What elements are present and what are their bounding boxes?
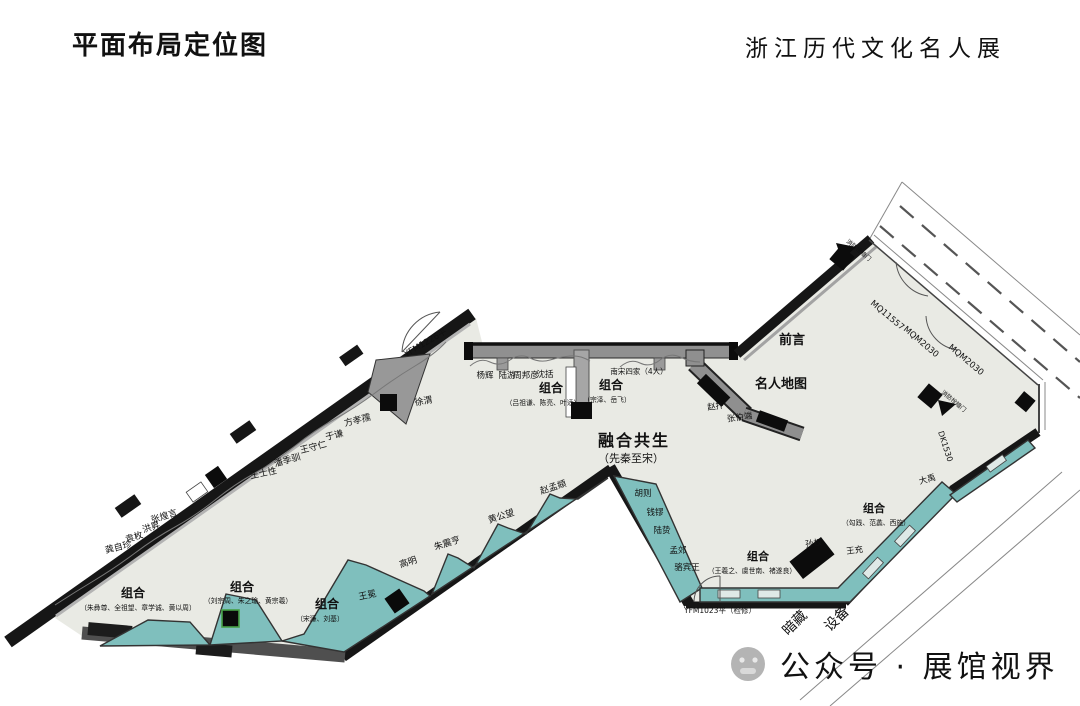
hidden-equip-label-1: 暗藏 [780, 608, 811, 639]
showcase-box-green [222, 610, 239, 627]
group-mingqing1-label: 组合 [121, 585, 146, 600]
group-mingqing3-label: 组合 [315, 596, 340, 611]
group-song1-label: 组合 [539, 380, 564, 395]
group-song2-label: 组合 [599, 377, 624, 392]
label-zhoubangyan: 周邦彦 [513, 370, 539, 381]
door-code-bottom: YFM1023平（检修） [683, 605, 756, 615]
group-song1-names: （吕祖谦、陈亮、叶适） [506, 398, 581, 407]
watermark-logo-mouth [740, 668, 756, 674]
watermark-text: 公众号 · 展馆视界 [780, 650, 1059, 685]
group-mingqing2-label: 组合 [230, 579, 255, 594]
group-jin-names: （王羲之、虞世南、褚遂良） [708, 566, 796, 575]
watermark-logo-eye [752, 657, 757, 662]
label-qianliu: 钱镠 [646, 507, 664, 518]
floor-plan-drawing: 平面布局定位图 浙江历代文化名人展 融合共生 （先秦至宋） 前言 名人地图 徐渭… [0, 0, 1080, 706]
label-yanghui: 杨辉 [476, 370, 494, 381]
showcase-box [380, 394, 397, 411]
group-song2-names: （宗泽、岳飞） [583, 395, 631, 404]
map-wall-pier [686, 350, 704, 366]
label-luobinwang: 骆宾王 [674, 562, 700, 573]
floor-polygon [52, 240, 1038, 656]
label-mengjiao: 孟郊 [669, 545, 687, 556]
group-mingqing3-names: （宋濂、刘基） [296, 614, 344, 623]
wall-pier [230, 420, 257, 444]
label-huze: 胡则 [634, 488, 651, 499]
zone-center-sub: （先秦至宋） [598, 451, 664, 465]
wall-pier [115, 494, 142, 518]
label-luzhi: 陆贽 [653, 525, 671, 536]
label-shenkuo: 沈括 [536, 369, 554, 380]
zone-center-title: 融合共生 [598, 431, 670, 450]
group-mingqing1-names: （朱彝尊、全祖望、章学诚、黄以周） [80, 603, 196, 612]
showcase-white [718, 590, 740, 598]
wall-pier [339, 345, 363, 367]
group-mingqing2-names: （刘宗周、朱之瑜、黄宗羲） [204, 596, 292, 605]
group-jin-label: 组合 [747, 549, 770, 563]
zone-foreword: 前言 [779, 332, 805, 348]
floor-area [52, 240, 1038, 656]
watermark-logo [731, 647, 765, 681]
zone-celebrity-map: 名人地图 [755, 376, 807, 392]
group-xianqin-names: （勾践、范蠡、西施） [842, 518, 910, 527]
exhibition-title: 浙江历代文化名人展 [745, 36, 1006, 62]
group-xianqin-label: 组合 [863, 501, 886, 515]
watermark: 公众号 · 展馆视界 [731, 647, 1059, 685]
watermark-logo-eye [739, 657, 744, 662]
showcase-white [758, 590, 780, 598]
label-nansongsijia: 南宋四家（4人） [610, 366, 667, 376]
wall-cap [464, 342, 473, 360]
floor-plan-page: 平面布局定位图 浙江历代文化名人展 融合共生 （先秦至宋） 前言 名人地图 徐渭… [0, 0, 1080, 706]
page-title: 平面布局定位图 [72, 30, 268, 61]
